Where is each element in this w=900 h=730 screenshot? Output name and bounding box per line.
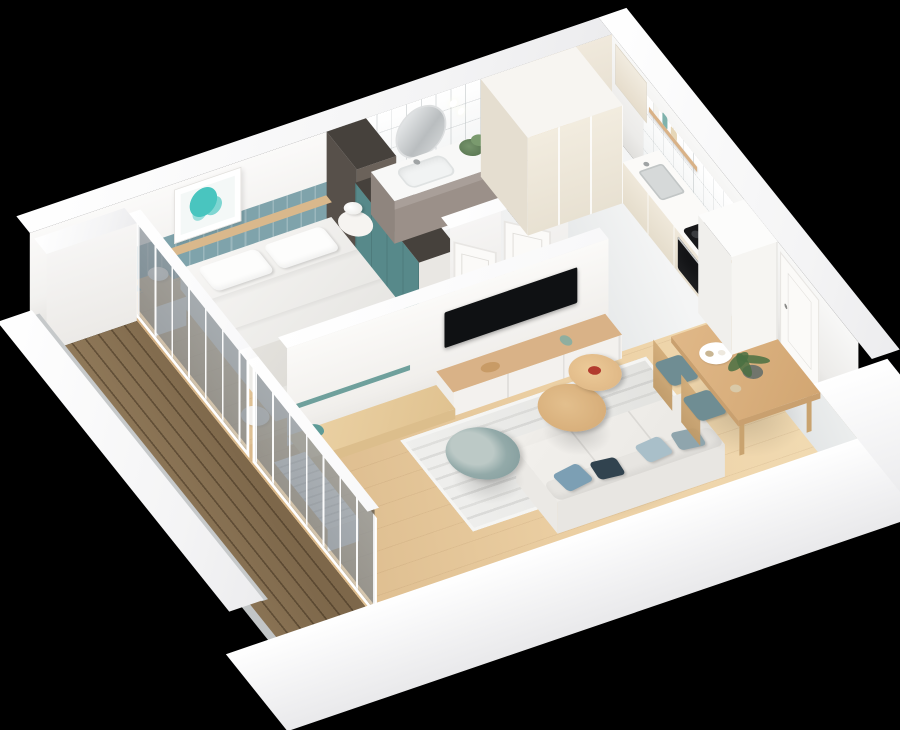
- red-bowl: [586, 365, 604, 377]
- kitchen-faucet-icon: [642, 161, 650, 167]
- cup: [716, 349, 726, 356]
- vase-with-branches: [557, 334, 575, 347]
- wood-bowl: [478, 360, 503, 375]
- small-bowl: [728, 383, 743, 393]
- cup: [704, 350, 716, 358]
- apartment-3d-render: [0, 0, 900, 730]
- entry-closet-front: [732, 241, 778, 354]
